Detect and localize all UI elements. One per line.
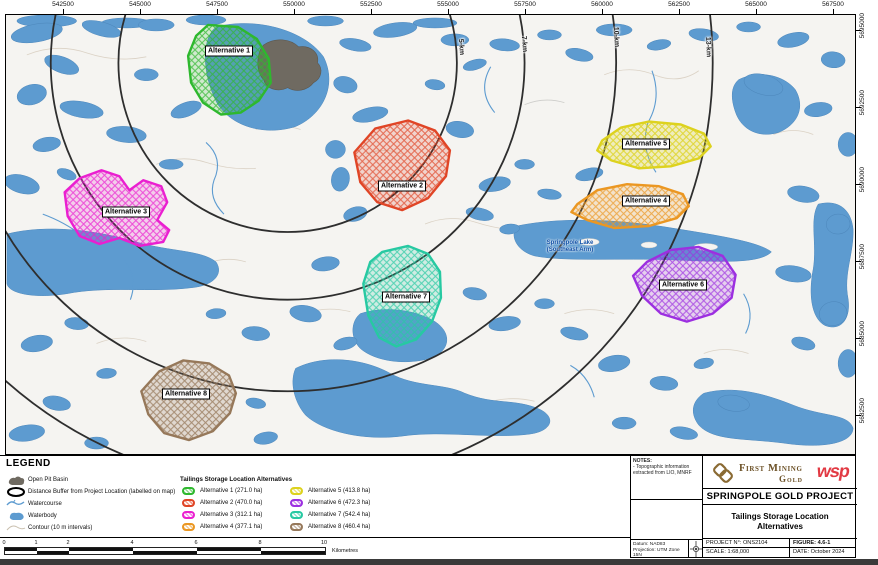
right-axis-label: 5692500 bbox=[859, 90, 866, 115]
scale-label: SCALE: bbox=[706, 549, 726, 555]
top-axis-label: 547500 bbox=[206, 1, 228, 8]
project-no-label: PROJECT N°: bbox=[706, 540, 741, 546]
wsp-logo: wsp bbox=[815, 461, 851, 482]
legend-title: LEGEND bbox=[6, 458, 51, 469]
legend-swatch-alternative-2 bbox=[182, 499, 195, 507]
legend-item-contour: Contour (10 m intervals) bbox=[28, 525, 92, 531]
right-tick bbox=[856, 30, 861, 31]
figure-no-cell: FIGURE: 4.6-1 bbox=[790, 539, 855, 548]
top-axis-label: 562500 bbox=[668, 1, 690, 8]
waterbody-icon bbox=[6, 511, 26, 521]
buffer-label-7km: 7-km bbox=[520, 36, 528, 53]
contour-icon bbox=[6, 523, 26, 533]
right-tick bbox=[856, 107, 861, 108]
top-axis-label: 542500 bbox=[52, 1, 74, 8]
legend-item-open-pit: Open Pit Basin bbox=[28, 477, 68, 483]
legend-swatch-alternative-1 bbox=[182, 487, 195, 495]
buffer-label-10km: 10-km bbox=[612, 27, 620, 48]
legend-swatch-alternative-8 bbox=[290, 523, 303, 531]
lake-name-label: Springpole Lake (Southeast Arm) bbox=[547, 240, 594, 254]
legend-swatch-alternative-7 bbox=[290, 511, 303, 519]
figure-title: Tailings Storage Location Alternatives bbox=[703, 505, 857, 539]
legend-item-alternative-4: Alternative 4 (377.1 ha) bbox=[200, 524, 262, 530]
right-axis-label: 5682500 bbox=[859, 398, 866, 423]
compass-icon bbox=[690, 541, 702, 557]
figure-no-label: FIGURE: bbox=[793, 540, 816, 546]
alternative-5-label: Alternative 5 bbox=[622, 139, 670, 150]
alternative-2-label: Alternative 2 bbox=[378, 181, 426, 192]
title-block: NOTES: - Topographic information extract… bbox=[630, 455, 856, 558]
top-axis-label: 557500 bbox=[514, 1, 536, 8]
legend-item-alternative-2: Alternative 2 (470.0 ha) bbox=[200, 500, 262, 506]
scale-bar-unit: Kilometres bbox=[332, 548, 358, 554]
scale-bar-segment bbox=[197, 551, 261, 554]
datum-line2: Projection: UTM Zone 15N bbox=[633, 548, 686, 559]
legend-swatch-alternative-4 bbox=[182, 523, 195, 531]
legend-swatch-alternative-5 bbox=[290, 487, 303, 495]
alternative-8-label: Alternative 8 bbox=[162, 389, 210, 400]
scale-bar bbox=[4, 547, 326, 555]
scale-tick-label: 8 bbox=[258, 540, 261, 546]
scale-bar-segment bbox=[5, 551, 37, 554]
scale-tick-label: 4 bbox=[130, 540, 133, 546]
map-sheet: 542500 545000 547500 550000 552500 55500… bbox=[0, 0, 878, 565]
alternative-3-label: Alternative 3 bbox=[102, 207, 150, 218]
scale-value: 1:68,000 bbox=[727, 549, 749, 555]
scale-cell: SCALE: 1:68,000 bbox=[703, 548, 790, 557]
buffer-label-5km: 5-km bbox=[457, 39, 465, 56]
legend-swatch-alternative-3 bbox=[182, 511, 195, 519]
legend-item-alternative-1: Alternative 1 (271.0 ha) bbox=[200, 488, 262, 494]
sheet-bottom-border bbox=[0, 559, 878, 565]
first-mining-gold-logo-text: First Mining bbox=[739, 463, 803, 474]
scale-tick-label: 0 bbox=[2, 540, 5, 546]
alternative-4-label: Alternative 4 bbox=[622, 196, 670, 207]
scale-tick-label: 2 bbox=[66, 540, 69, 546]
scale-bar-segment bbox=[37, 551, 69, 554]
top-axis-label: 550000 bbox=[283, 1, 305, 8]
top-axis-label: 545000 bbox=[129, 1, 151, 8]
lake-name-line1: Springpole Lake bbox=[547, 240, 594, 247]
date-value: October 2024 bbox=[811, 549, 845, 555]
scale-bar-divider bbox=[0, 537, 630, 538]
top-axis-label: 567500 bbox=[822, 1, 844, 8]
legend-item-alternative-6: Alternative 6 (472.3 ha) bbox=[308, 500, 370, 506]
project-title: SPRINGPOLE GOLD PROJECT bbox=[703, 489, 857, 505]
project-no-value: ONS2104 bbox=[743, 540, 768, 546]
logos-cell: First Mining Gold wsp bbox=[703, 456, 857, 489]
right-tick bbox=[856, 415, 861, 416]
date-label: DATE: bbox=[793, 549, 809, 555]
compass-cell bbox=[689, 539, 703, 557]
scale-bar-segment bbox=[261, 551, 325, 554]
distance-buffer-icon bbox=[6, 487, 26, 497]
watercourse-icon bbox=[6, 499, 26, 509]
topographic-map bbox=[6, 15, 855, 454]
open-pit-icon bbox=[6, 475, 26, 485]
top-axis-label: 552500 bbox=[360, 1, 382, 8]
lake-name-line2: (Southeast Arm) bbox=[547, 247, 594, 254]
figure-title-line1: Tailings Storage Location bbox=[703, 512, 857, 522]
right-axis-label: 5685000 bbox=[859, 321, 866, 346]
first-mining-gold-logo-icon bbox=[711, 461, 735, 485]
project-no-cell: PROJECT N°: ONS2104 bbox=[703, 539, 790, 548]
legend-item-alternative-5: Alternative 5 (413.8 ha) bbox=[308, 488, 370, 494]
figure-title-line2: Alternatives bbox=[703, 522, 857, 532]
legend-item-alternative-7: Alternative 7 (542.4 ha) bbox=[308, 512, 370, 518]
scale-tick-label: 1 bbox=[34, 540, 37, 546]
right-axis-label: 5687500 bbox=[859, 244, 866, 269]
right-axis-label: 5695000 bbox=[859, 13, 866, 38]
scale-tick-label: 6 bbox=[194, 540, 197, 546]
legend-item-alternative-3: Alternative 3 (312.1 ha) bbox=[200, 512, 262, 518]
legend-item-watercourse: Watercourse bbox=[28, 501, 62, 507]
right-tick bbox=[856, 184, 861, 185]
scale-bar-segment bbox=[69, 551, 133, 554]
right-tick bbox=[856, 261, 861, 262]
first-mining-gold-logo-text2: Gold bbox=[779, 474, 803, 484]
legend-alternatives-title: Tailings Storage Location Alternatives bbox=[180, 476, 292, 483]
legend-item-distance-buffer: Distance Buffer from Project Location (l… bbox=[28, 489, 175, 495]
buffer-label-13km: 13-km bbox=[704, 37, 712, 57]
legend-swatch-alternative-6 bbox=[290, 499, 303, 507]
alternative-1-label: Alternative 1 bbox=[205, 46, 253, 57]
top-axis-label: 555000 bbox=[437, 1, 459, 8]
datum-cell: Datum: NAD83 Projection: UTM Zone 15N bbox=[631, 539, 689, 557]
scale-tick-label: 10 bbox=[321, 540, 327, 546]
blank-cell bbox=[631, 500, 703, 539]
top-axis-label: 560000 bbox=[591, 1, 613, 8]
alternative-7-label: Alternative 7 bbox=[382, 292, 430, 303]
figure-no-value: 4.6-1 bbox=[818, 540, 831, 546]
legend-item-alternative-8: Alternative 8 (460.4 ha) bbox=[308, 524, 370, 530]
alternative-6-label: Alternative 6 bbox=[659, 280, 707, 291]
top-axis-label: 565000 bbox=[745, 1, 767, 8]
legend-item-waterbody: Waterbody bbox=[28, 513, 57, 519]
scale-bar-segment bbox=[133, 551, 197, 554]
right-axis-label: 5690000 bbox=[859, 167, 866, 192]
right-tick bbox=[856, 338, 861, 339]
notes-body: - Topographic information extracted from… bbox=[633, 464, 700, 476]
date-cell: DATE: October 2024 bbox=[790, 548, 855, 557]
legend-panel: LEGEND Open Pit Basin Distance Buffer fr… bbox=[0, 455, 630, 559]
notes-cell: NOTES: - Topographic information extract… bbox=[631, 456, 703, 500]
map-canvas bbox=[5, 14, 856, 455]
